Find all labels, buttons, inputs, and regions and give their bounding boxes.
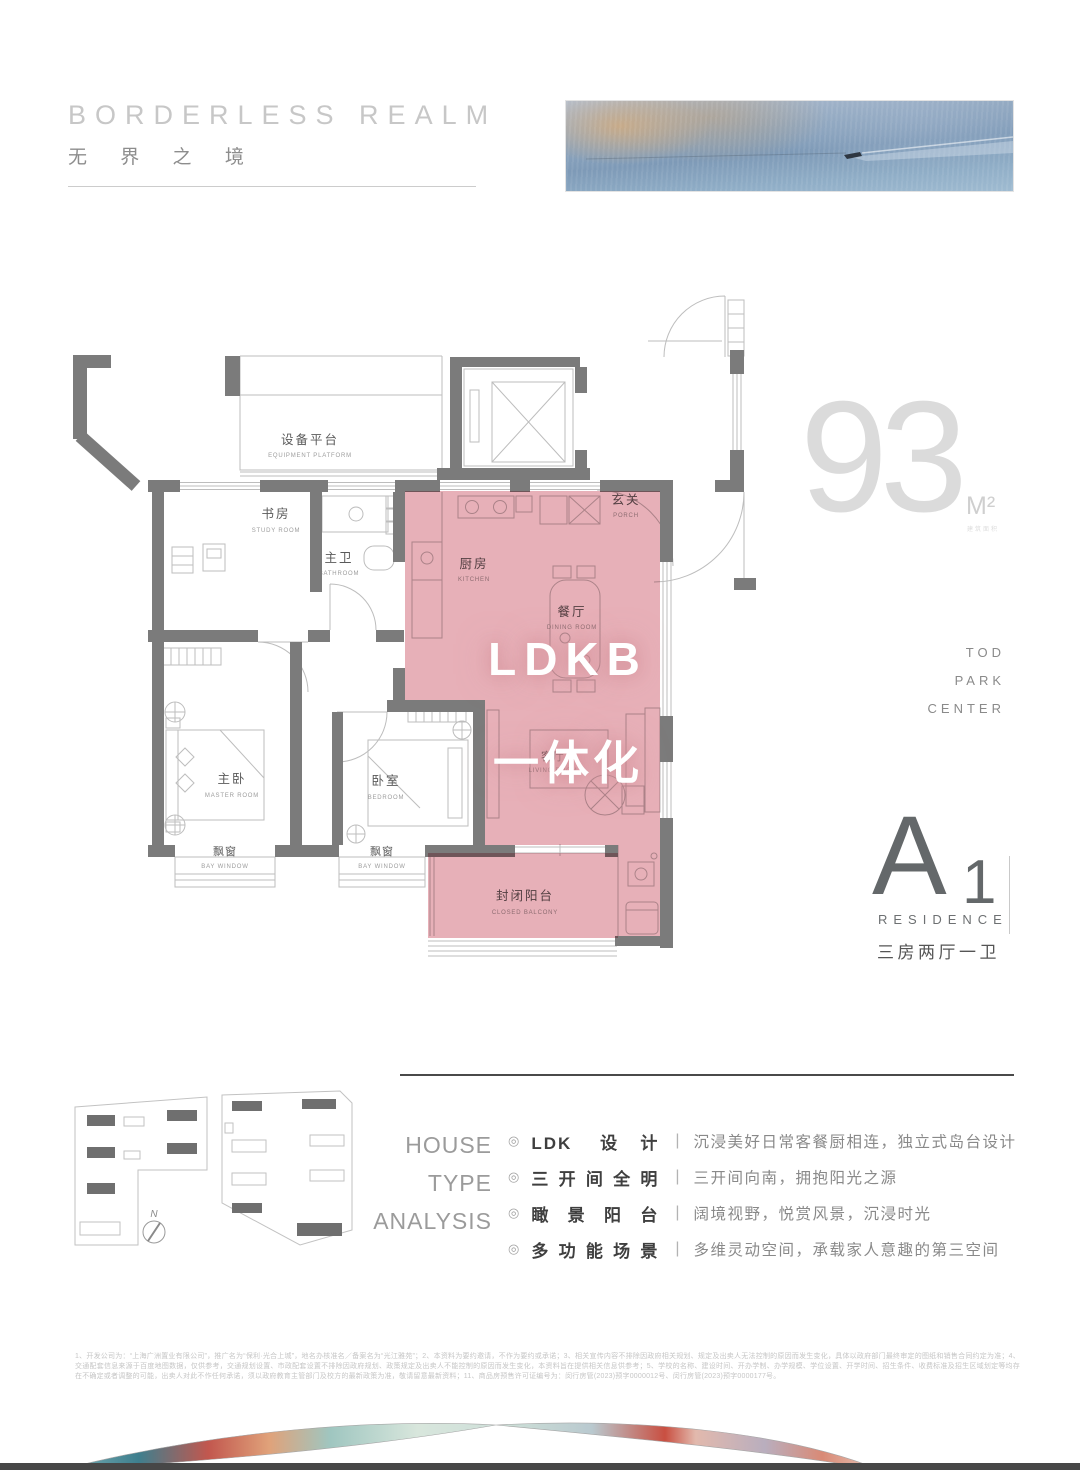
separator: | (675, 1204, 679, 1222)
floor-plan: 设备平台EQUIPMENT PLATFORM 书房STUDY ROOM 主卫BA… (60, 278, 760, 968)
svg-text:EQUIPMENT PLATFORM: EQUIPMENT PLATFORM (268, 453, 352, 459)
svg-text:BEDROOM: BEDROOM (368, 795, 405, 801)
compass-icon: N (143, 1209, 165, 1243)
svg-text:设备平台: 设备平台 (281, 432, 339, 447)
room-label-bath: 主卫BATHROOM (319, 551, 360, 577)
highlight-text-line1: LDKB (437, 632, 699, 686)
svg-text:BAY WINDOW: BAY WINDOW (201, 864, 248, 870)
svg-text:主卧: 主卧 (217, 772, 246, 786)
disclaimer-text: 1、开发公司为：“上海广洲置业有限公司”，推广名为“保利·光合上城”，地名办核准… (75, 1352, 1020, 1382)
compass-north-label: N (150, 1209, 158, 1220)
target-circle-icon: ◎ (508, 1205, 519, 1221)
residence-spec: 三房两厅一卫 (877, 938, 1011, 963)
svg-text:BATHROOM: BATHROOM (319, 571, 360, 577)
residence-divider-line (1009, 856, 1010, 934)
site-plan: N (62, 1085, 372, 1270)
residence-subtitle: RESIDENCE (878, 912, 1008, 927)
analysis-item-3: ◎ 瞰景阳台 | 阔境视野，悦赏风景，沉浸时光 (508, 1198, 932, 1228)
svg-text:STUDY ROOM: STUDY ROOM (252, 528, 301, 534)
ldkb-highlight-zone (405, 491, 660, 938)
svg-text:主卫: 主卫 (324, 551, 353, 565)
analysis-item-title: 三开间全明 (531, 1165, 659, 1190)
target-circle-icon: ◎ (508, 1241, 519, 1257)
hero-photo (565, 100, 1014, 192)
separator: | (675, 1132, 679, 1150)
target-circle-icon: ◎ (508, 1169, 519, 1185)
footer-art (0, 1395, 1080, 1470)
tagline-tod: TOD (885, 645, 1005, 660)
area-value: 93 (800, 378, 960, 536)
room-label-study: 书房STUDY ROOM (252, 506, 301, 534)
svg-text:飘窗: 飘窗 (213, 844, 237, 858)
right-arc (496, 1423, 880, 1470)
svg-text:书房: 书房 (261, 506, 290, 521)
header-divider (68, 186, 476, 187)
analysis-item-desc: 多维灵动空间，承载家人意趣的第三空间 (694, 1238, 1000, 1260)
separator: | (675, 1168, 679, 1186)
separator: | (675, 1240, 679, 1258)
svg-text:卧室: 卧室 (371, 773, 400, 788)
highlight-text-line2: 一体化 (437, 727, 699, 793)
residence-letter: A (872, 800, 947, 912)
analysis-item-desc: 三开间向南，拥抱阳光之源 (694, 1166, 898, 1188)
footer-bar (0, 1463, 1080, 1470)
analysis-item-desc: 沉浸美好日常客餐厨相连，独立式岛台设计 (694, 1130, 1017, 1152)
boat-wake-graphic (566, 101, 1013, 191)
analysis-item-title: 多功能场景 (531, 1237, 659, 1262)
tagline-center: CENTER (885, 701, 1005, 716)
analysis-divider (400, 1074, 1014, 1076)
target-circle-icon: ◎ (508, 1133, 519, 1149)
page-subtitle: 无 界 之 境 (68, 142, 258, 169)
tagline-park: PARK (885, 673, 1005, 688)
room-label-equipment: 设备平台EQUIPMENT PLATFORM (268, 432, 352, 459)
area-unit-caption: 建筑面积 (967, 524, 999, 533)
residence-number: 1 (962, 852, 996, 914)
analysis-item-desc: 阔境视野，悦赏风景，沉浸时光 (694, 1202, 932, 1224)
room-label-master: 主卧MASTER ROOM (205, 772, 259, 799)
analysis-item-4: ◎ 多功能场景 | 多维灵动空间，承载家人意趣的第三空间 (508, 1234, 1000, 1264)
poster-page: BORDERLESS REALM 无 界 之 境 (0, 0, 1080, 1470)
svg-text:BAY WINDOW: BAY WINDOW (358, 864, 405, 870)
svg-text:飘窗: 飘窗 (370, 844, 394, 858)
room-label-bedroom: 卧室BEDROOM (368, 773, 405, 801)
page-title: BORDERLESS REALM (68, 100, 497, 131)
analysis-item-1: ◎ LDK 设计 | 沉浸美好日常客餐厨相连，独立式岛台设计 (508, 1126, 1017, 1156)
area-unit: M² (966, 492, 995, 521)
analysis-item-title: LDK 设计 (531, 1129, 659, 1154)
analysis-item-2: ◎ 三开间全明 | 三开间向南，拥抱阳光之源 (508, 1162, 898, 1192)
analysis-item-title: 瞰景阳台 (531, 1201, 659, 1226)
svg-text:MASTER ROOM: MASTER ROOM (205, 793, 259, 799)
